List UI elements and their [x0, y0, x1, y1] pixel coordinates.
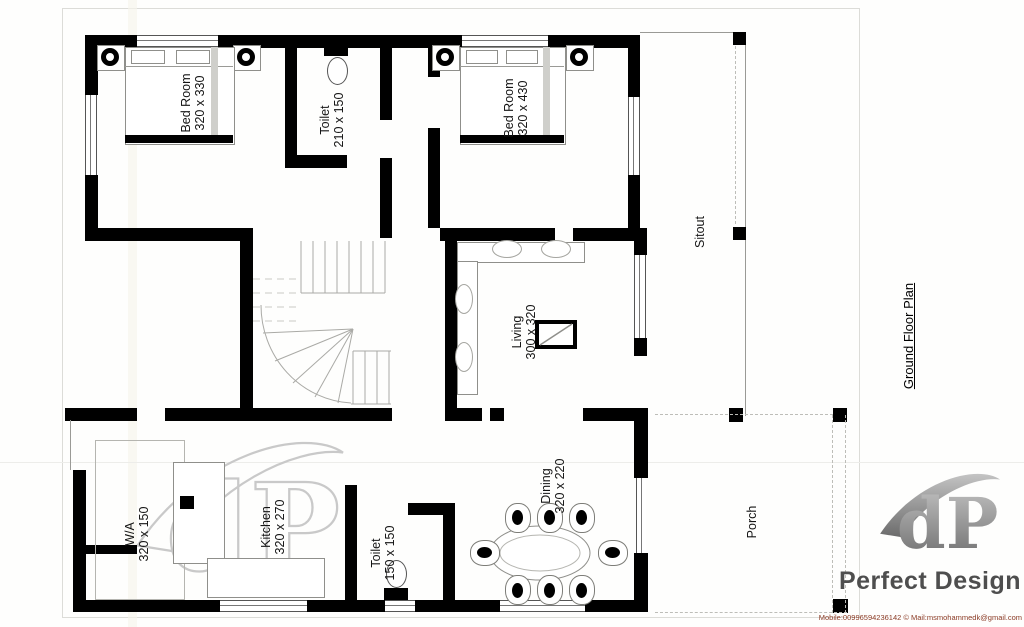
dining-chair — [505, 575, 531, 605]
table-lamp-icon — [436, 48, 454, 66]
pillow — [176, 50, 210, 64]
wall — [415, 600, 500, 612]
room-label-bedroom-1: Bed Room 320 x 330 — [179, 73, 207, 132]
wall — [634, 408, 648, 478]
pillow — [506, 50, 538, 64]
window — [628, 97, 640, 175]
column — [733, 32, 746, 45]
room-name: Toilet — [318, 93, 332, 148]
toilet-cistern — [324, 43, 348, 56]
wall — [85, 228, 252, 241]
logo-monogram-text: dP — [897, 482, 999, 565]
wall — [252, 408, 392, 421]
kitchen-sink — [180, 496, 194, 509]
room-dims: 300 x 320 — [524, 305, 538, 360]
wall — [73, 600, 220, 612]
wall — [65, 408, 137, 421]
bed-runner — [543, 47, 550, 135]
wall — [380, 158, 392, 238]
wall — [345, 485, 357, 600]
room-name: Bed Room — [179, 73, 193, 132]
wall — [628, 35, 640, 97]
dining-chair — [470, 540, 500, 566]
window — [636, 478, 646, 553]
room-label-kitchen: Kitchen 320 x 270 — [259, 500, 287, 555]
toilet-bowl — [327, 57, 348, 85]
room-label-sitout: Sitout — [693, 216, 707, 248]
sofa — [457, 261, 478, 395]
dining-table — [488, 524, 592, 582]
room-dims: 320 x 270 — [273, 500, 287, 555]
window — [634, 255, 646, 338]
room-name: Dining — [539, 459, 553, 514]
room-dims: 320 x 330 — [193, 73, 207, 132]
table-lamp-icon — [237, 48, 255, 66]
table-lamp-icon — [570, 48, 588, 66]
column — [729, 408, 743, 422]
wall — [443, 503, 455, 600]
setback-line — [70, 420, 71, 470]
room-dims: 320 x 430 — [516, 78, 530, 137]
room-label-toilet-2: Toilet 150 x 150 — [369, 526, 397, 581]
toilet-cistern — [384, 588, 408, 600]
drawing-title-text: Ground Floor Plan — [902, 283, 916, 389]
room-name: Bed Room — [502, 78, 516, 137]
bedside-table — [97, 45, 125, 71]
pillow — [131, 50, 165, 64]
porch-dashed-line — [655, 414, 833, 415]
bedside-table — [233, 45, 261, 71]
dining-chair — [569, 503, 595, 533]
room-name: Porch — [745, 506, 759, 539]
room-name: W/A — [123, 507, 137, 562]
sofa-cushion — [541, 240, 571, 258]
wall — [445, 408, 482, 421]
column — [733, 227, 746, 240]
floor-plan-canvas: dP — [0, 0, 1024, 627]
dining-chair — [569, 575, 595, 605]
wall — [73, 470, 86, 612]
window — [85, 95, 97, 175]
wall — [634, 338, 647, 356]
bedside-table — [566, 45, 594, 71]
table-lamp-icon — [101, 48, 119, 66]
wall — [285, 43, 297, 165]
room-label-porch: Porch — [745, 506, 759, 539]
staircase — [253, 241, 391, 407]
room-name: Sitout — [693, 216, 707, 248]
window — [462, 35, 548, 47]
company-name: Perfect Design — [836, 567, 1024, 596]
room-label-toilet-1: Toilet 210 x 150 — [318, 93, 346, 148]
wall — [307, 600, 385, 612]
room-dims: 320 x 220 — [553, 459, 567, 514]
sofa-cushion — [492, 240, 522, 258]
drawing-title: Ground Floor Plan — [902, 283, 916, 389]
wall — [445, 235, 457, 415]
wall — [440, 228, 555, 241]
wall — [585, 600, 647, 612]
sofa-cushion — [455, 284, 473, 314]
center-table — [535, 320, 577, 349]
sofa-cushion — [455, 342, 473, 372]
kitchen-counter — [207, 558, 325, 598]
bed-runner — [211, 47, 218, 135]
room-dims: 320 x 150 — [137, 507, 151, 562]
pillow — [466, 50, 498, 64]
window — [220, 600, 307, 612]
bed-footboard — [125, 135, 233, 143]
room-name: Kitchen — [259, 500, 273, 555]
room-label-living: Living 300 x 320 — [510, 305, 538, 360]
room-name: Living — [510, 305, 524, 360]
kitchen-counter — [173, 462, 225, 564]
dining-chair — [598, 540, 628, 566]
sitout-edge-line — [745, 32, 746, 416]
room-label-bedroom-2: Bed Room 320 x 430 — [502, 78, 530, 137]
sitout-dashed-line — [735, 46, 736, 224]
dining-chair — [505, 503, 531, 533]
wall — [285, 155, 347, 168]
room-label-dining: Dining 320 x 220 — [539, 459, 567, 514]
room-dims: 210 x 150 — [332, 93, 346, 148]
room-name: Toilet — [369, 526, 383, 581]
sitout-edge-line — [640, 32, 746, 33]
bedside-table — [432, 45, 460, 71]
wall — [380, 35, 392, 120]
wall — [428, 128, 440, 228]
wall — [240, 228, 253, 421]
company-logo: dP — [862, 462, 1012, 567]
dining-chair — [537, 575, 563, 605]
window — [137, 35, 218, 47]
room-label-work-area: W/A 320 x 150 — [123, 507, 151, 562]
porch-dashed-line — [832, 415, 833, 613]
wall — [165, 408, 240, 421]
contact-info: Mobile:00996594236142 © Mail:msmohammedk… — [806, 613, 1022, 622]
room-dims: 150 x 150 — [383, 526, 397, 581]
wall — [490, 408, 504, 421]
window — [385, 600, 415, 612]
wall — [634, 228, 647, 255]
